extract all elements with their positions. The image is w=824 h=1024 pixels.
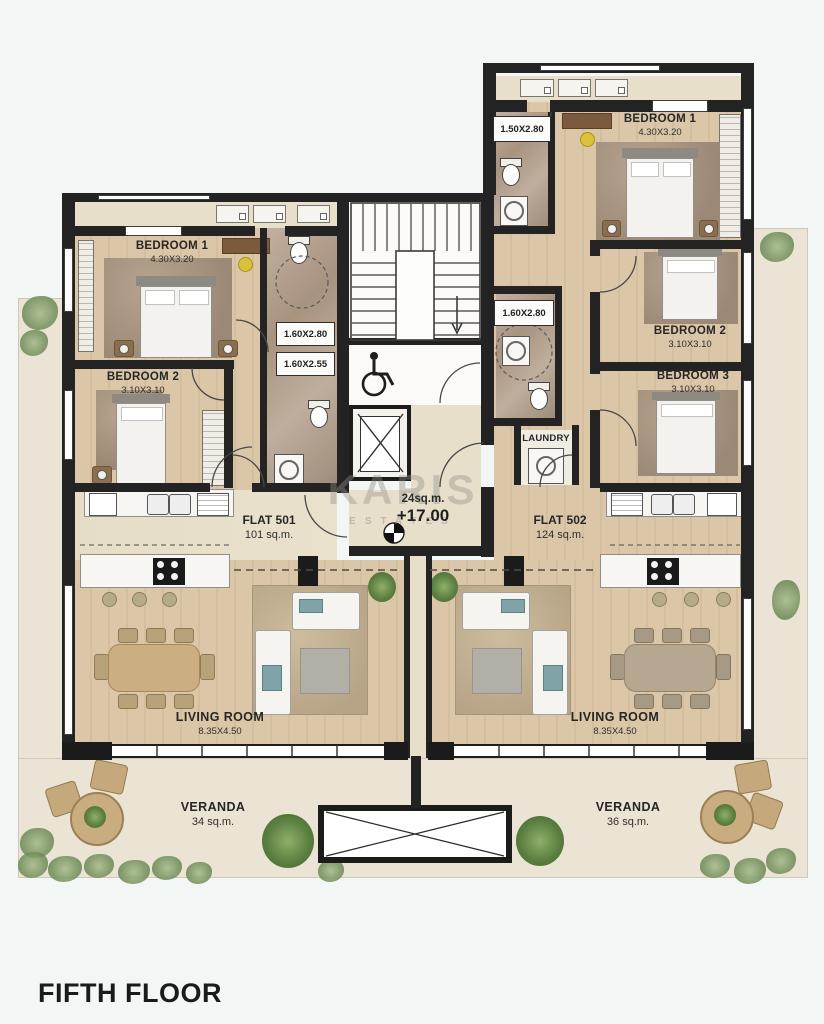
wall-pier <box>62 742 112 760</box>
bed-headboard <box>136 276 216 286</box>
wall <box>572 425 579 485</box>
wall <box>404 556 410 758</box>
bar-stool <box>132 592 147 607</box>
kitchen-sink <box>651 494 673 515</box>
room-label: VERANDA <box>181 800 246 814</box>
toilet <box>288 236 308 264</box>
toilet <box>500 158 520 186</box>
dining-chair <box>200 654 215 680</box>
room-dims: 4.30X3.20 <box>150 254 193 265</box>
label-bath-dims: 1.60X2.80 <box>494 300 554 326</box>
dining-chair <box>662 628 682 643</box>
flat-name: FLAT 501 <box>242 513 295 527</box>
stairwell-floor <box>349 202 481 342</box>
room-dims: 3.10X3.10 <box>121 385 164 396</box>
flat-area: 101 sq.m. <box>245 529 293 541</box>
closet <box>595 79 628 97</box>
dining-chair <box>690 628 710 643</box>
room-label: BEDROOM 1 <box>136 240 208 252</box>
bath-dims-text: 1.60X2.80 <box>502 308 545 319</box>
wall <box>600 240 754 249</box>
shrub <box>734 858 766 884</box>
kitchen-counter <box>606 489 742 517</box>
potted-plant <box>368 572 396 602</box>
washing-machine <box>528 448 564 484</box>
sink-unit <box>500 196 528 226</box>
palm-plant <box>262 814 314 868</box>
dining-chair <box>118 694 138 709</box>
desk <box>562 113 612 129</box>
window <box>540 65 660 71</box>
wall <box>600 483 754 492</box>
stair-lobby-floor <box>349 342 481 405</box>
wall <box>494 100 527 112</box>
outdoor-chair <box>734 759 773 794</box>
window <box>743 252 752 344</box>
table-plant <box>84 806 106 828</box>
closet <box>253 205 286 223</box>
lamp <box>607 224 617 234</box>
palm-plant <box>516 816 564 866</box>
wall <box>224 369 233 488</box>
dining-chair <box>146 694 166 709</box>
wall <box>590 292 600 374</box>
sofa-cushion <box>262 665 282 691</box>
wall <box>491 286 562 294</box>
wall <box>590 240 600 256</box>
shrub <box>318 860 344 882</box>
toilet <box>308 400 328 428</box>
label-flat502-bedroom2: BEDROOM 2 3.10X3.10 <box>654 325 726 350</box>
room-label: BEDROOM 1 <box>624 113 696 125</box>
pillow <box>631 162 659 177</box>
wall <box>252 483 349 492</box>
potted-plant <box>430 572 458 602</box>
kitchen-sink <box>147 494 169 515</box>
window <box>64 390 73 460</box>
room-label: BEDROOM 2 <box>654 325 726 337</box>
dining-chair <box>690 694 710 709</box>
nightstand <box>92 466 112 484</box>
wall <box>481 193 494 445</box>
bath-dims-text: 1.60X2.55 <box>284 359 327 370</box>
window <box>652 100 708 112</box>
wall <box>590 410 600 488</box>
wall-pier <box>706 742 754 760</box>
wall <box>62 483 210 492</box>
closet <box>558 79 591 97</box>
floorplan-canvas: KARIS ESTATES BEDROOM 1 4.30X3.20 BEDROO… <box>0 0 824 1024</box>
room-dims: 4.30X3.20 <box>638 127 681 138</box>
desk-chair <box>580 132 595 147</box>
dining-chair <box>118 628 138 643</box>
label-bath-dims: 1.50X2.80 <box>493 116 551 142</box>
dining-chair <box>146 628 166 643</box>
room-dims: 3.10X3.10 <box>671 384 714 395</box>
table-plant <box>714 804 736 826</box>
room-label: BEDROOM 2 <box>107 371 179 383</box>
dining-chair <box>662 694 682 709</box>
dining-table <box>108 644 200 692</box>
flat-area: 124 sq.m. <box>536 529 584 541</box>
closet-handle <box>239 213 246 220</box>
closet-handle <box>320 213 327 220</box>
room-area: 34 sq.m. <box>192 816 234 828</box>
closet-handle <box>618 87 625 94</box>
pillow <box>661 404 713 417</box>
shelf-unit <box>611 493 643 516</box>
sofa-chaise <box>532 630 568 715</box>
pillow <box>121 407 163 421</box>
pillow <box>667 260 715 273</box>
label-flat501-living: LIVING ROOM 8.35X4.50 <box>176 710 264 737</box>
wall <box>555 286 562 426</box>
pillow <box>179 290 209 305</box>
fridge <box>707 493 737 516</box>
room-label: LIVING ROOM <box>176 710 264 724</box>
closet-handle <box>544 87 551 94</box>
lamp <box>97 470 107 480</box>
nightstand <box>114 340 134 357</box>
double-bed <box>140 286 212 358</box>
sofa <box>292 592 360 630</box>
label-core-area: 24sq.m. +17.00 <box>397 493 449 526</box>
wardrobe <box>202 410 225 486</box>
room-dims: 8.35X4.50 <box>593 726 636 737</box>
label-laundry: LAUNDRY <box>522 433 570 444</box>
room-label: VERANDA <box>596 800 661 814</box>
elevator-car <box>360 416 400 472</box>
kitchen-island <box>600 554 741 588</box>
closet-handle <box>581 87 588 94</box>
wall <box>62 360 234 369</box>
wall <box>411 756 421 808</box>
label-flat502-bedroom3: BEDROOM 3 3.10X3.10 <box>657 370 729 395</box>
shower-head <box>502 336 530 366</box>
dining-chair <box>716 654 731 680</box>
wall <box>74 226 125 236</box>
coffee-table <box>300 648 350 694</box>
label-flat502-veranda: VERANDA 36 sq.m. <box>596 800 661 828</box>
wall <box>285 226 337 236</box>
lamp <box>704 224 714 234</box>
wardrobe <box>78 240 94 352</box>
wall <box>426 556 432 758</box>
shelf-unit <box>197 493 229 516</box>
sofa-cushion <box>501 599 525 613</box>
wall <box>550 100 652 112</box>
closet <box>216 205 249 223</box>
bath-dims-text: 1.60X2.80 <box>284 329 327 340</box>
label-bath-dims: 1.60X2.55 <box>276 352 335 376</box>
nightstand <box>699 220 718 237</box>
room-dims: 8.35X4.50 <box>198 726 241 737</box>
bar-stool <box>652 592 667 607</box>
shrub <box>186 862 212 884</box>
dining-chair <box>174 628 194 643</box>
pillow <box>663 162 691 177</box>
window <box>743 108 752 220</box>
cooktop <box>647 558 679 585</box>
glazed-wall <box>112 744 384 758</box>
single-bed <box>662 256 718 320</box>
dining-table <box>624 644 716 692</box>
cooktop <box>153 558 185 585</box>
wardrobe <box>719 114 741 238</box>
wall <box>349 338 481 345</box>
sofa-chaise <box>255 630 291 715</box>
nightstand <box>218 340 238 357</box>
label-flat501-bedroom2: BEDROOM 2 3.10X3.10 <box>107 371 179 396</box>
label-flat502-bedroom1: BEDROOM 1 4.30X3.20 <box>624 113 696 138</box>
single-bed <box>656 400 716 474</box>
toilet <box>528 382 548 410</box>
wall-pier <box>428 742 454 760</box>
kitchen-sink <box>169 494 191 515</box>
kitchen-sink <box>673 494 695 515</box>
room-area: 36 sq.m. <box>607 816 649 828</box>
window <box>125 226 182 236</box>
bed-headboard <box>622 148 698 158</box>
dining-chair <box>174 694 194 709</box>
room-label: LAUNDRY <box>522 433 570 444</box>
wall <box>337 193 349 493</box>
window <box>743 380 752 466</box>
room-label: BEDROOM 3 <box>657 370 729 382</box>
dining-chair <box>94 654 109 680</box>
label-flat502: FLAT 502 124 sq.m. <box>533 513 586 541</box>
washing-machine <box>274 454 304 486</box>
label-flat501: FLAT 501 101 sq.m. <box>242 513 295 541</box>
label-bath-dims: 1.60X2.80 <box>276 322 335 346</box>
dining-chair <box>634 694 654 709</box>
flat-name: FLAT 502 <box>533 513 586 527</box>
wall <box>491 418 562 426</box>
core-level-text: +17.00 <box>397 506 449 526</box>
closet <box>297 205 330 223</box>
bar-stool <box>716 592 731 607</box>
bed-headboard <box>658 248 722 256</box>
window <box>64 248 73 312</box>
skylight-box <box>318 805 512 863</box>
double-bed <box>626 158 694 238</box>
shrub <box>118 860 150 884</box>
lamp <box>223 344 233 354</box>
kitchen-counter <box>84 489 234 517</box>
bath-dims-text: 1.50X2.80 <box>500 124 543 135</box>
sofa <box>462 592 530 630</box>
window <box>64 585 73 735</box>
label-flat501-bedroom1: BEDROOM 1 4.30X3.20 <box>136 240 208 265</box>
core-area-text: 24sq.m. <box>402 493 445 505</box>
wall <box>260 228 267 488</box>
elevator-lobby-floor <box>411 405 481 490</box>
kitchen-island <box>80 554 230 588</box>
wall <box>494 226 555 234</box>
lamp <box>119 344 129 354</box>
pillow <box>145 290 175 305</box>
room-label: LIVING ROOM <box>571 710 659 724</box>
glazed-wall <box>454 744 706 758</box>
sofa-cushion <box>299 599 323 613</box>
wall-pier <box>298 556 318 586</box>
wall-pier <box>504 556 524 586</box>
wall-pier <box>384 742 408 760</box>
elevator <box>349 405 411 481</box>
sofa-cushion <box>543 665 563 691</box>
wall <box>182 226 255 236</box>
wall <box>349 546 483 556</box>
desk-chair <box>238 257 253 272</box>
dining-chair <box>610 654 625 680</box>
wall <box>349 193 483 202</box>
room-dims: 3.10X3.10 <box>668 339 711 350</box>
shrub <box>48 856 82 882</box>
closet-handle <box>276 213 283 220</box>
nightstand <box>602 220 621 237</box>
bar-stool <box>684 592 699 607</box>
fridge <box>89 493 117 516</box>
label-flat502-living: LIVING ROOM 8.35X4.50 <box>571 710 659 737</box>
single-bed <box>116 403 166 485</box>
bar-stool <box>162 592 177 607</box>
dining-chair <box>634 628 654 643</box>
label-flat501-veranda: VERANDA 34 sq.m. <box>181 800 246 828</box>
wall <box>514 425 521 485</box>
window <box>743 598 752 730</box>
page-title: FIFTH FLOOR <box>38 978 222 1009</box>
window <box>98 195 210 200</box>
coffee-table <box>472 648 522 694</box>
closet <box>520 79 554 97</box>
bar-stool <box>102 592 117 607</box>
